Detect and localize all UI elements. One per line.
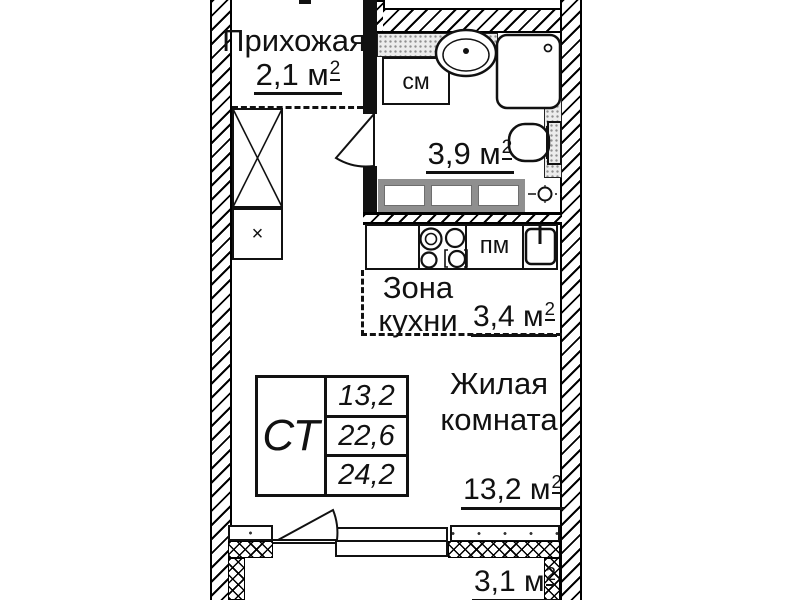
living-room-area: 13,2 м2 (450, 472, 575, 510)
bathroom-area: 3,9 м2 (400, 137, 540, 174)
towel-rail (378, 179, 525, 212)
radiator-left (228, 525, 273, 541)
apartment-areas: 13,2 22,6 24,2 (327, 378, 406, 494)
window-frame-line (337, 540, 446, 542)
towel-rail-segment (431, 185, 472, 206)
dishwasher-label: пм (480, 232, 510, 259)
balcony-wall-left-v (228, 558, 245, 600)
kitchen-name: Зона кухни (372, 271, 464, 337)
closet-mark: × (252, 223, 264, 245)
balcony-wall-left-h (228, 541, 273, 558)
wall-top-bathroom (383, 8, 560, 33)
wall-top-tick (299, 0, 311, 4)
balcony-door (278, 510, 337, 540)
towel-rail-segment (478, 185, 519, 206)
hallway-area: 2,1 м2 (232, 58, 364, 95)
area-value-living: 13,2 (327, 378, 406, 418)
bath-counter (377, 33, 498, 57)
balcony-wall-right-h (448, 541, 560, 558)
living-room-name: Жилая комната (420, 366, 578, 438)
stove (418, 224, 467, 270)
kitchen-sink-box (522, 224, 558, 270)
apartment-info-table: СТ 13,2 22,6 24,2 (255, 375, 409, 497)
wall-left (210, 0, 232, 600)
balcony-window (335, 527, 448, 557)
kitchen-zone-dashed-left (361, 270, 364, 336)
area-value-total: 24,2 (327, 457, 406, 494)
area-value-no-balcony: 22,6 (327, 418, 406, 458)
floor-plan: × см пм (0, 0, 800, 600)
riser-circle (539, 188, 552, 201)
washing-machine-label: см (402, 68, 429, 94)
apartment-type: СТ (258, 378, 327, 494)
shower-drain (545, 45, 552, 52)
towel-rail-segment (384, 185, 425, 206)
toilet-tank (547, 121, 562, 165)
hallway-name: Прихожая (222, 24, 366, 57)
closet-box: × (232, 208, 283, 260)
kitchen-area: 3,4 м2 (468, 299, 560, 337)
bathroom-door (336, 114, 374, 167)
washing-machine: см (382, 57, 450, 105)
radiator-right (450, 525, 560, 542)
balcony-area: 3,1 м2 (460, 564, 570, 600)
dishwasher: пм (467, 224, 522, 270)
wardrobe (232, 108, 283, 208)
